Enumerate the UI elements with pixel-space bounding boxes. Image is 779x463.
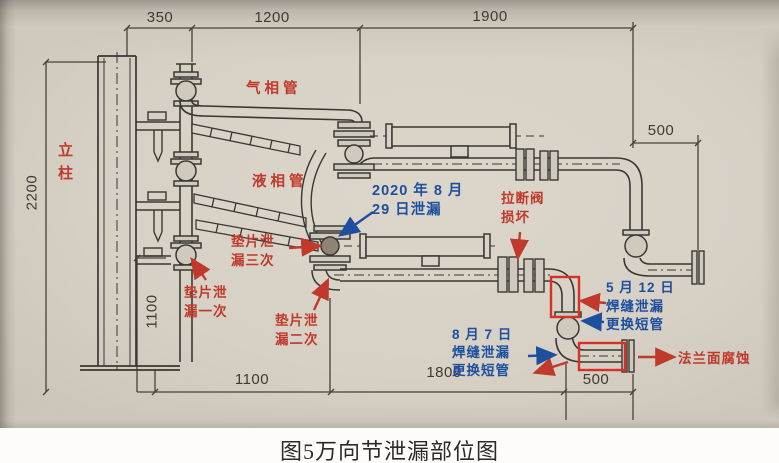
riser-swivel-joints [171,72,201,270]
gas-phase-arm [180,101,362,122]
lower-outlet-flange [622,340,634,372]
dim-right-500: 500 [636,122,686,139]
caption-strip: 图5万向节泄漏部位图 [0,428,779,463]
gasket-leak-thrice-note: 垫片泄 漏三次 [231,232,275,270]
column-label: 立柱 [55,142,73,188]
screenshot: 350 1200 1900 500 2200 1100 1100 1800 50… [0,0,779,463]
right-outlet-flange [692,251,704,284]
dim-bottom-1100: 1100 [217,371,287,388]
dim-top-1900: 1900 [455,8,525,25]
dim-lower-1100: 1100 [144,282,161,342]
gas-arm-brace [192,124,300,155]
scanned-photo: 350 1200 1900 500 2200 1100 1100 1800 50… [0,0,779,428]
liquid-run-pipe [334,269,552,281]
universal-joint-gas [334,122,374,178]
flange-corrosion-note: 法兰面腐蚀 [678,349,751,368]
dim-bottom-500: 500 [571,371,621,388]
dim-top-350: 350 [135,9,185,26]
gasket-leak-twice-note: 垫片泄 漏二次 [275,311,319,349]
leak-2020-note: 2020 年 8 月 29 日泄漏 [372,182,463,220]
liquid-pipe-label: 液相管 [252,173,308,192]
figure-caption: 图5万向节泄漏部位图 [0,434,779,463]
right-drop-pipe [616,158,694,276]
dim-top-1200: 1200 [237,9,307,26]
support-column [80,52,180,370]
weld-leak-aug7-note: 8 月 7 日 焊缝泄漏 更换短管 [452,326,512,380]
right-drop-swivel [623,230,649,257]
gas-run-pipe [352,158,620,170]
dim-column-2200: 2200 [24,163,41,223]
dimension-lines [43,22,701,420]
breakaway-valve-note: 拉断阀 损坏 [501,189,545,227]
gasket-leak-once-note: 垫片泄 漏一次 [184,283,228,321]
liquid-balance-cylinder [344,234,500,266]
weld-leak-may12-note: 5 月 12 日 焊缝泄漏 更换短管 [606,279,675,335]
gas-pipe-label: 气相管 [246,80,302,99]
